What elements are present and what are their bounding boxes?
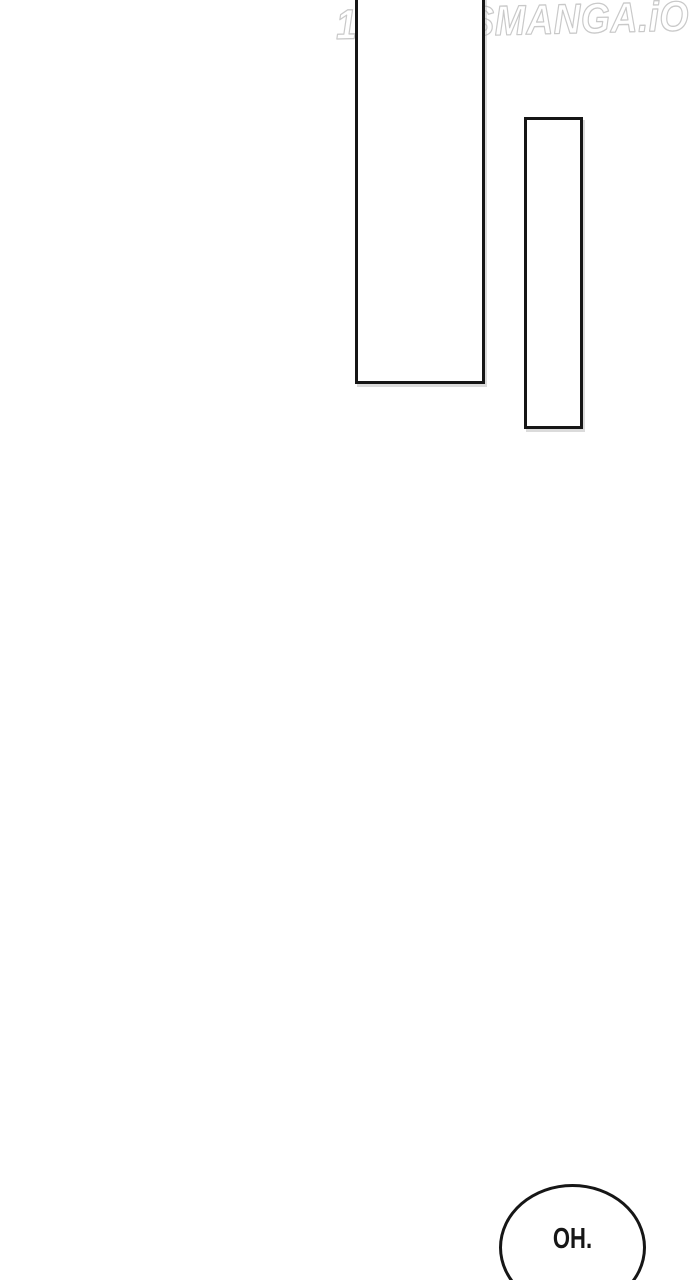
panel-frame-tall: [355, 0, 485, 384]
speech-bubble-text: OH.: [517, 1224, 629, 1254]
manga-page: 1STKISSMANGA.iO OH.: [0, 0, 690, 1280]
panel-frame-narrow: [524, 117, 583, 429]
